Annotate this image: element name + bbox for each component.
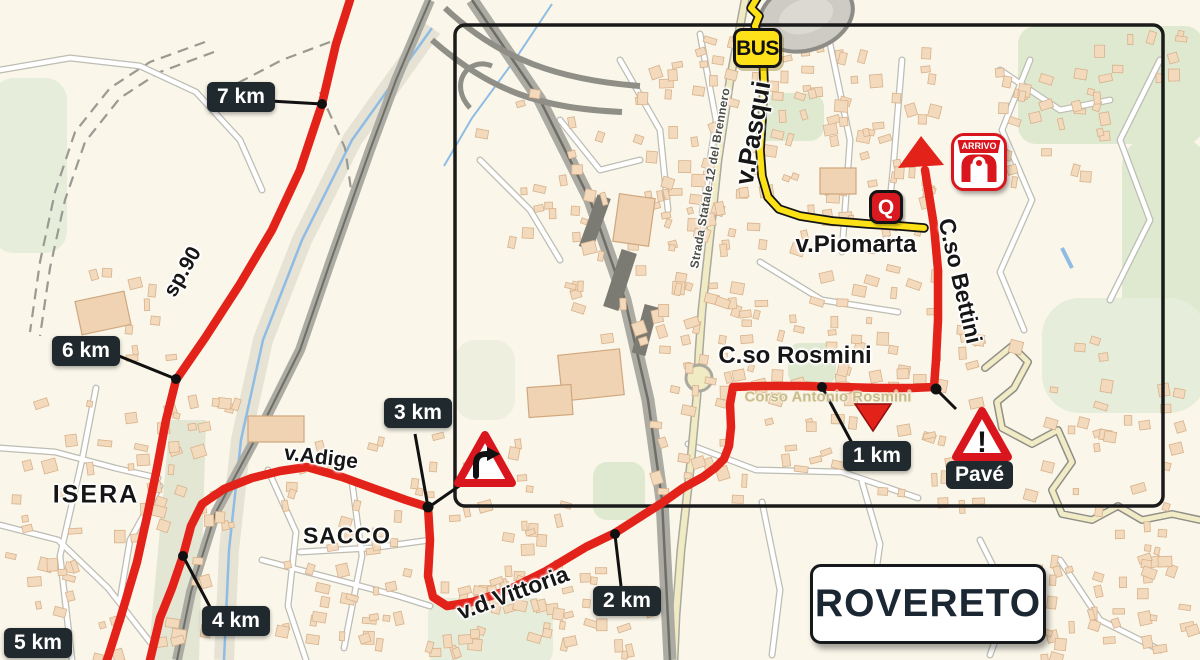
km-marker-1: 1 km	[843, 441, 911, 471]
race-map: sp.90 ISERA SACCO v.Adige v.d.Vittoria C…	[0, 0, 1200, 660]
km-marker-4: 4 km	[202, 606, 270, 636]
place-label-sacco: SACCO	[303, 523, 391, 550]
map-canvas	[0, 0, 1200, 660]
arrivo-badge: ARRIVO	[951, 133, 1007, 191]
km-marker-3: 3 km	[384, 398, 452, 428]
road-label-rosmini: C.so Rosmini	[718, 342, 871, 370]
bus-badge: BUS	[733, 28, 782, 68]
pave-label: Pavé	[946, 461, 1013, 489]
km-marker-7: 7 km	[207, 82, 275, 112]
quartiere-badge: Q	[869, 190, 903, 224]
pave-warning-icon: !	[950, 404, 1014, 464]
km-marker-2: 2 km	[593, 586, 661, 616]
km-marker-6: 6 km	[52, 336, 120, 366]
city-sign-text: ROVERETO	[815, 582, 1041, 626]
svg-text:!: !	[977, 426, 987, 459]
city-sign-rovereto: ROVERETO	[810, 564, 1046, 644]
km-marker-5: 5 km	[4, 628, 72, 658]
last-km-triangle-icon	[853, 402, 893, 434]
curve-warning-icon	[452, 428, 518, 490]
finish-gantry-icon	[957, 154, 1001, 184]
finish-arrow-icon	[898, 136, 944, 168]
arrivo-banner-label: ARRIVO	[957, 140, 1000, 153]
place-label-isera: ISERA	[53, 481, 139, 510]
road-label-piomarta: v.Piomarta	[796, 231, 917, 259]
